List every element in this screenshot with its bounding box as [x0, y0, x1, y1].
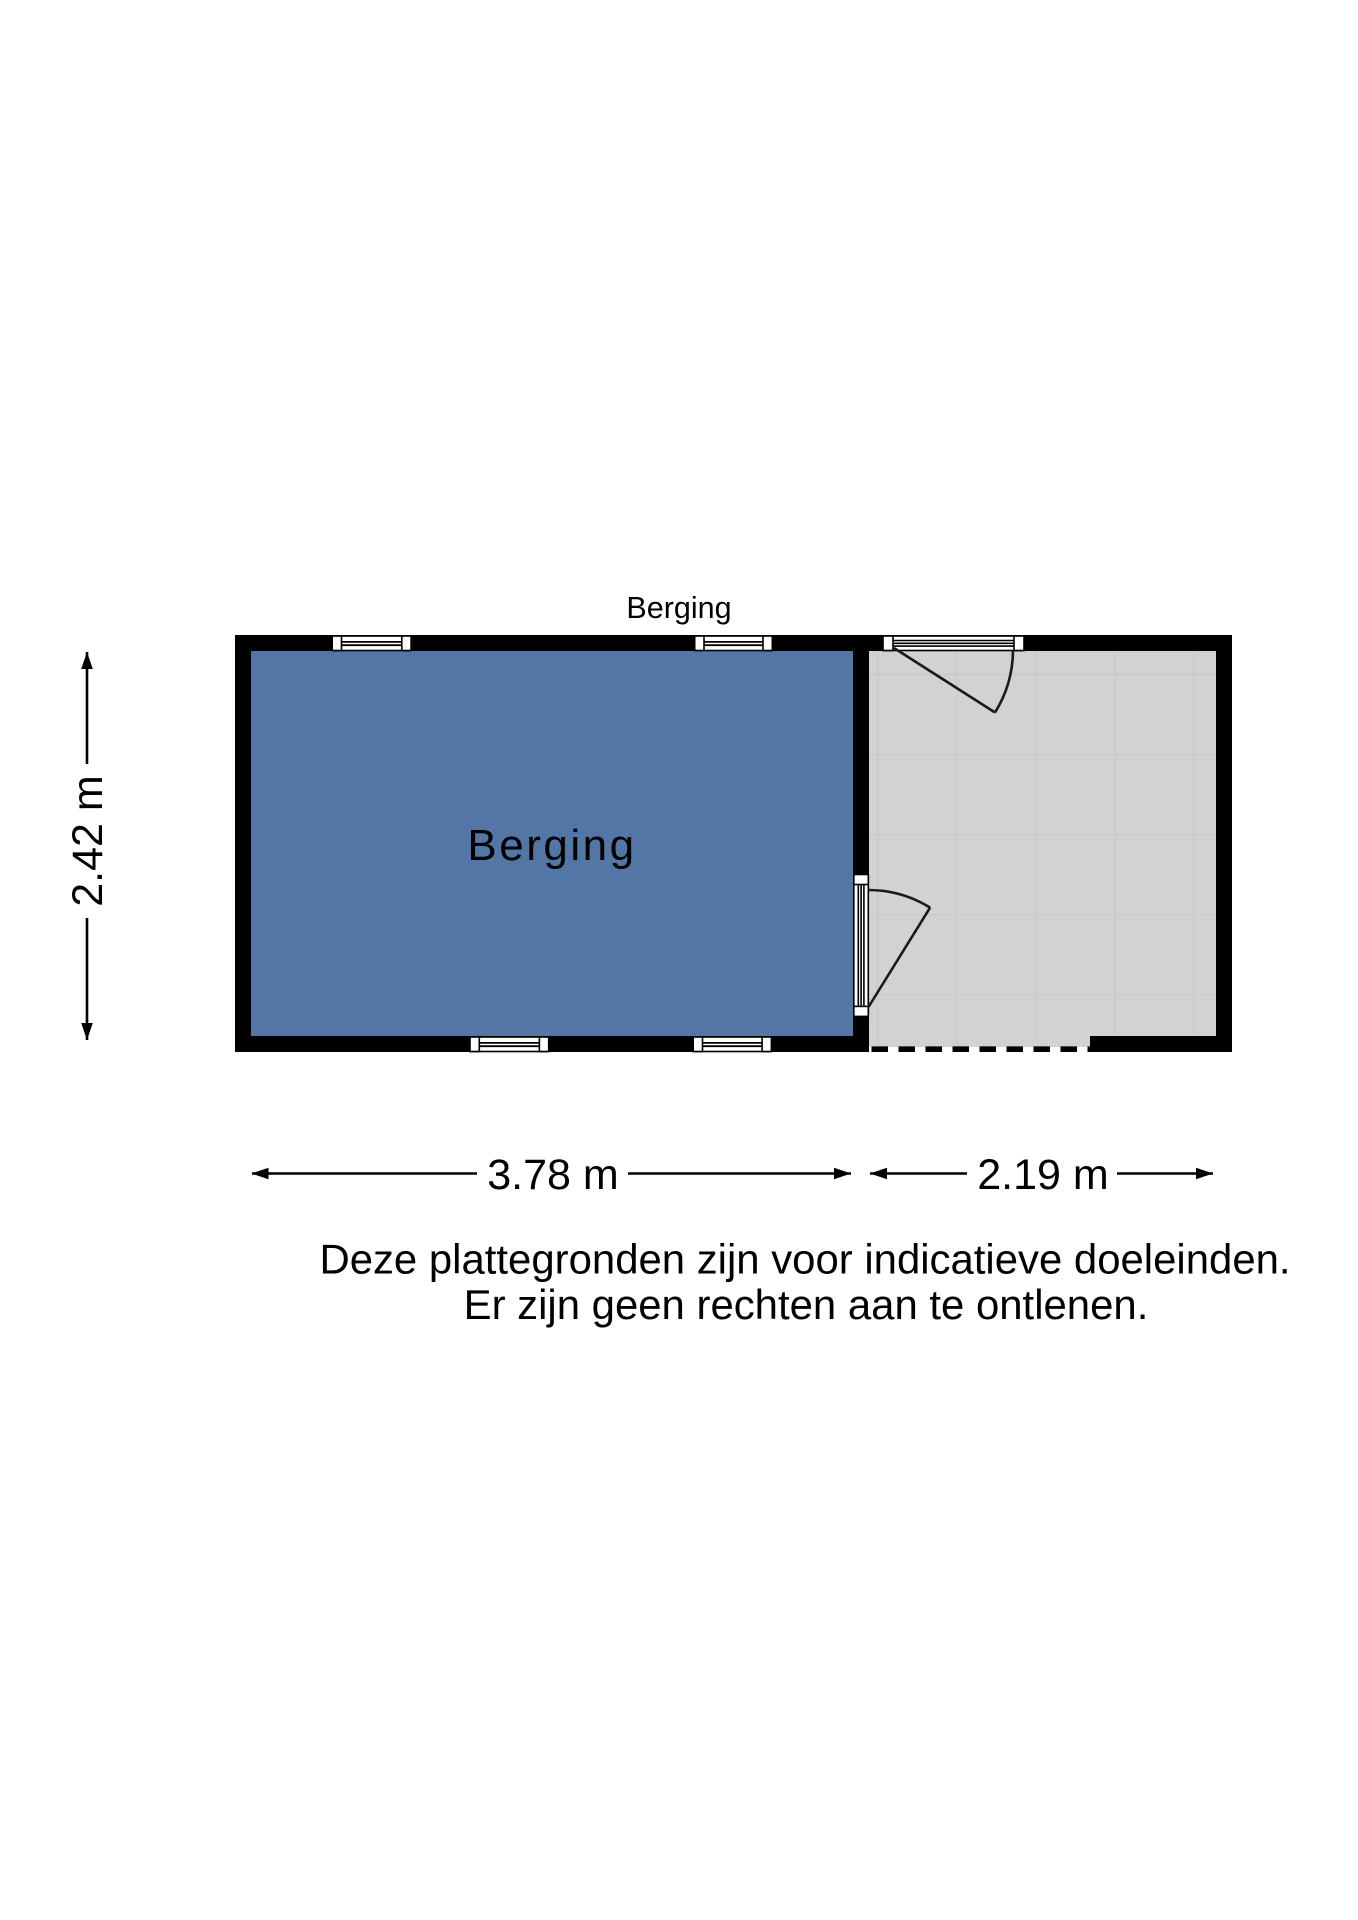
svg-text:Berging: Berging	[626, 591, 731, 625]
svg-text:3.78 m: 3.78 m	[487, 1151, 618, 1199]
svg-text:2.42 m: 2.42 m	[64, 775, 112, 906]
svg-text:Berging: Berging	[467, 821, 636, 870]
svg-text:Er zijn geen rechten aan te on: Er zijn geen rechten aan te ontlenen.	[464, 1281, 1149, 1328]
svg-text:2.19 m: 2.19 m	[977, 1151, 1108, 1199]
svg-text:Deze plattegronden zijn voor i: Deze plattegronden zijn voor indicatieve…	[319, 1236, 1290, 1283]
